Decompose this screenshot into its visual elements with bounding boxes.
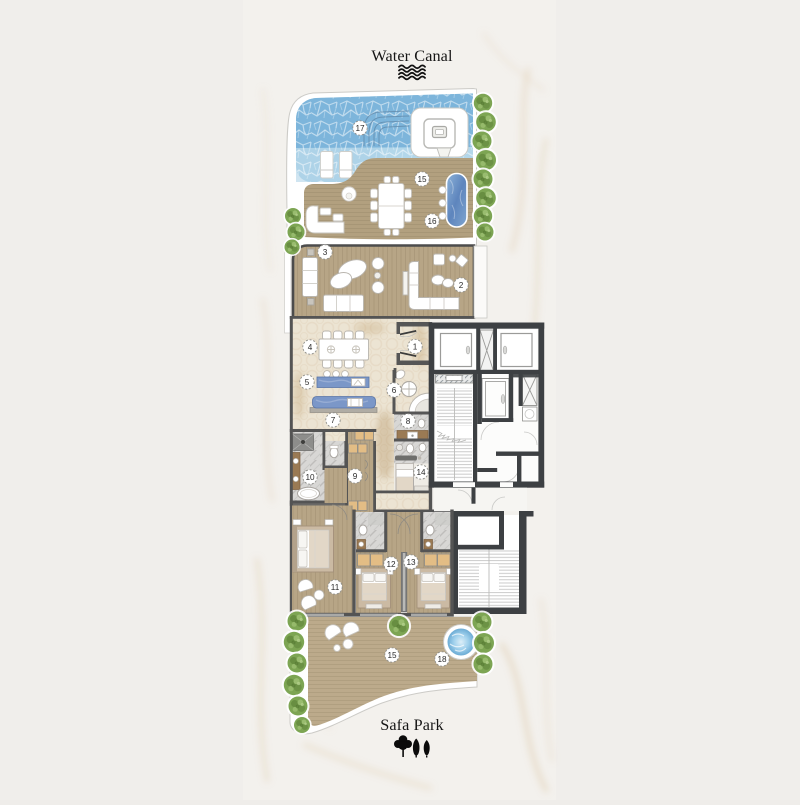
svg-text:15: 15 [417,175,427,184]
svg-text:9: 9 [353,472,358,481]
svg-text:3: 3 [323,248,328,257]
svg-text:5: 5 [305,378,310,387]
svg-text:13: 13 [406,558,416,567]
svg-text:17: 17 [355,124,365,133]
svg-text:12: 12 [386,560,396,569]
svg-text:16: 16 [427,217,437,226]
svg-text:Safa Park: Safa Park [380,716,444,734]
svg-text:18: 18 [437,655,447,664]
svg-text:8: 8 [406,417,411,426]
svg-text:11: 11 [331,583,340,592]
svg-text:2: 2 [459,281,464,290]
svg-text:4: 4 [308,343,313,352]
svg-text:10: 10 [305,473,315,482]
svg-text:6: 6 [392,386,397,395]
svg-text:7: 7 [331,416,336,425]
svg-text:14: 14 [416,468,426,477]
svg-text:Water Canal: Water Canal [371,47,453,65]
svg-text:1: 1 [413,342,418,351]
svg-text:15: 15 [387,651,397,660]
